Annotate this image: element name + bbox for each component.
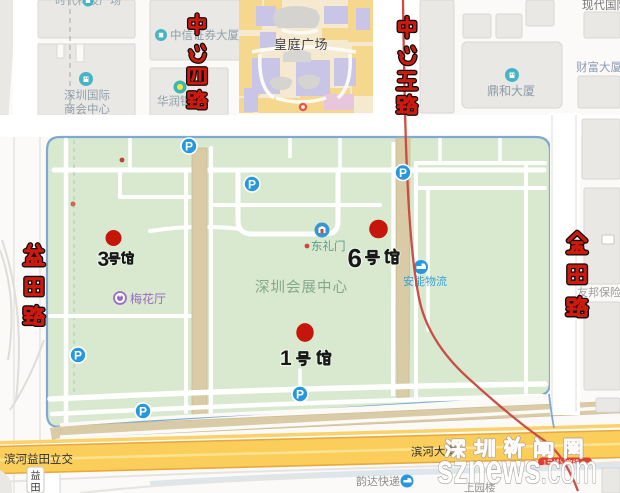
svg-text:韵达快递: 韵达快递 <box>356 474 400 488</box>
svg-text:财富大厦: 财富大厦 <box>576 60 620 74</box>
svg-text:安能物流: 安能物流 <box>403 274 447 288</box>
svg-text:鼎和大厦: 鼎和大厦 <box>487 84 535 98</box>
svg-text:深圳会展中心: 深圳会展中心 <box>255 279 348 296</box>
svg-text:6: 6 <box>348 243 362 273</box>
svg-text:现代国际: 现代国际 <box>582 0 620 12</box>
svg-text:田: 田 <box>31 483 41 493</box>
svg-text:友邦保险: 友邦保险 <box>577 285 620 299</box>
svg-text:梅花厅: 梅花厅 <box>130 291 166 306</box>
svg-text:深圳国际: 深圳国际 <box>64 88 110 102</box>
svg-text:中信证券大厦: 中信证券大厦 <box>170 28 239 42</box>
svg-text:商会中心: 商会中心 <box>64 102 110 116</box>
svg-text:东礼门: 东礼门 <box>311 239 346 253</box>
svg-text:滨河益田立交: 滨河益田立交 <box>4 452 73 466</box>
svg-text:益: 益 <box>31 469 41 482</box>
svg-text:皇庭广场: 皇庭广场 <box>274 37 328 52</box>
svg-text:sznews: sznews <box>437 446 541 492</box>
svg-text:3: 3 <box>98 248 110 271</box>
svg-text:.com: .com <box>540 448 597 492</box>
svg-text:1: 1 <box>280 347 292 370</box>
